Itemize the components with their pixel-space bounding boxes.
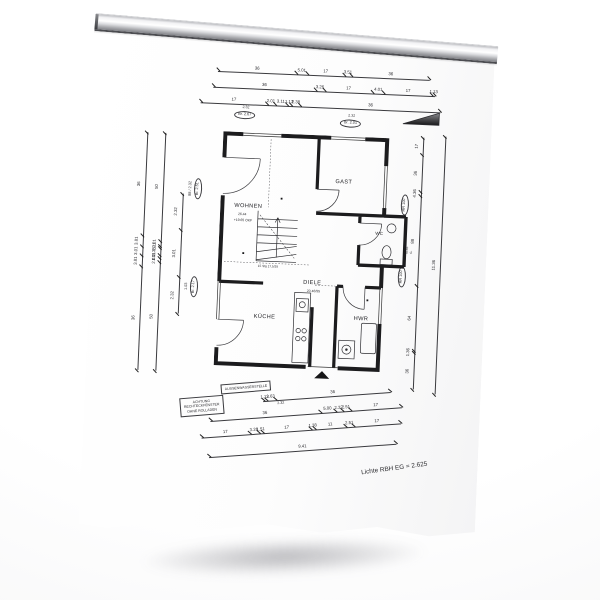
- dim-segment: 17: [263, 424, 312, 435]
- stove-icon: [296, 328, 307, 341]
- room-label-gast: GAST: [335, 180, 352, 186]
- dim-value: 36: [131, 315, 135, 320]
- dimension-chain-top-2: 363.26174.01171.13: [213, 81, 435, 98]
- wc-annotation: Kl.AF G.: [406, 244, 414, 254]
- dim-value: 17: [373, 403, 378, 408]
- dim-segment: 36: [137, 132, 149, 236]
- dim-segment: 36: [131, 266, 143, 370]
- dim-segment: 9.41: [209, 438, 397, 459]
- room-label-diele: DIELE: [303, 281, 321, 287]
- dim-value: 36: [136, 181, 140, 186]
- dim-value: 3.81: [134, 237, 139, 246]
- diele-note: 20 46/55: [307, 289, 320, 294]
- window-tag-group: 1.03 Br. 2.17: [185, 276, 199, 298]
- dim-value: 3.81: [133, 256, 138, 265]
- dim-value: 3.01: [134, 246, 139, 255]
- room-label-wc: WC: [375, 232, 383, 237]
- dim-value: 50: [154, 184, 158, 189]
- room-label-hwr: HWR: [354, 317, 369, 323]
- drawing-caption: Lichte RBH EG = 2.625: [361, 461, 428, 477]
- entrance-marker: [314, 371, 329, 379]
- room-level-label: +19.65 OKF: [234, 218, 253, 223]
- dim-value: 17: [406, 89, 411, 93]
- utility-fixtures: [338, 322, 376, 360]
- kitchen-fixtures: [292, 292, 311, 363]
- paper-drop-shadow: [103, 533, 504, 593]
- stair-note: 15 Stg 17,5/29: [258, 265, 278, 270]
- dim-value: 36: [330, 390, 335, 395]
- toilet-icon: [382, 246, 392, 259]
- dimension-chain-right-total: 11.36: [429, 136, 448, 394]
- dim-segment: 11.36: [429, 136, 448, 394]
- dimension-tag-oval: Br. 2.01: [340, 119, 361, 128]
- window-size-label: 2.32: [348, 113, 355, 118]
- dim-value: 11: [328, 423, 333, 428]
- dim-segment: 17: [307, 69, 344, 79]
- dim-value: 17: [223, 430, 228, 435]
- dim-segment: 17: [201, 428, 250, 439]
- dim-segment: 36: [218, 65, 297, 76]
- dimension-chain-top-1: 365.01173.5136: [218, 65, 430, 82]
- dim-value: 36: [388, 73, 393, 77]
- product-photo: 365.01173.5136 363.26174.01171.13 172.01…: [0, 0, 600, 600]
- dim-value: 17: [346, 87, 351, 91]
- exterior-walls: [214, 131, 390, 370]
- appliance-icon: [360, 323, 376, 354]
- dim-value: 17: [374, 419, 379, 424]
- dim-segment: 17: [324, 85, 372, 95]
- dim-segment: 17: [350, 401, 402, 413]
- room-label-wohnen: WOHNEN: [234, 204, 262, 211]
- dim-segment: 36: [213, 81, 315, 93]
- wc-fixtures: [380, 223, 396, 265]
- dim-value: 11.36: [431, 260, 436, 271]
- dim-segment: 2.32: [172, 277, 182, 314]
- dim-value: 36: [262, 411, 267, 416]
- dim-value: 2.32: [173, 207, 178, 216]
- interior-walls: [216, 133, 387, 370]
- sink-icon: [387, 224, 396, 233]
- dim-value: 17: [231, 98, 236, 102]
- room-label-kueche: KÜCHE: [254, 315, 276, 321]
- dim-value: 17: [284, 426, 289, 431]
- dim-segment: 50: [155, 133, 168, 242]
- dim-segment: 3.01: [173, 230, 183, 278]
- dim-segment: 36: [352, 71, 431, 82]
- dimension-tag-oval: Br. 2.17: [189, 276, 198, 297]
- window-size-label: 88 / 2.32: [189, 181, 193, 196]
- dimension-chain-left-inner: 502.011.113.381.112.0150: [149, 133, 167, 371]
- dim-segment: 17: [201, 96, 267, 107]
- dim-value: 17: [323, 70, 328, 74]
- floor-plan-sheet: 365.01173.5136 363.26174.01171.13 172.01…: [78, 20, 495, 550]
- dim-value: 2.32: [170, 291, 175, 300]
- staircase: [256, 211, 298, 263]
- dimension-tag-oval: Br. 2.51: [193, 178, 202, 199]
- dim-value: 3.11: [277, 100, 285, 105]
- rail-end-cap: [94, 14, 98, 29]
- dim-segment: 36: [210, 407, 320, 423]
- dim-segment: 17: [353, 417, 402, 428]
- window-size-label: 2.32: [242, 105, 249, 110]
- window-tag-group: 88 / 2.32 Br. 2.51: [189, 178, 203, 200]
- floor-plan-geometry: [213, 131, 419, 385]
- dimension-chain-left-outer: 363.813.013.8136: [131, 132, 149, 370]
- sink-icon: [296, 298, 309, 311]
- dimension-tag-oval: Br. 2.67: [234, 111, 255, 120]
- dim-segment: 11: [314, 421, 346, 431]
- dim-segment: 50: [149, 262, 162, 371]
- kitchen-counter: [292, 292, 311, 363]
- window-symbols: [215, 132, 389, 369]
- dimension-chain-bottom-total: 9.41: [209, 438, 397, 459]
- dim-segment: 17: [384, 88, 432, 98]
- dim-segment: 36: [275, 386, 391, 402]
- slope-wedge-icon: [402, 109, 443, 129]
- dimension-chain-left-short: 2.323.012.32: [172, 193, 185, 313]
- floor-plan-drawing: WOHNEN 26.44 +19.65 OKF GAST DIELE 20 46…: [213, 131, 419, 385]
- window-size-label: 2.32: [277, 401, 284, 406]
- note-box-warning: ACHTUNG RECHTECKFENSTER OHNE ROLLADEN: [179, 395, 224, 418]
- dim-value: 36: [255, 67, 260, 71]
- window-size-label: 1.03: [185, 283, 189, 291]
- dim-value: 50: [149, 314, 153, 319]
- dim-value: 9.41: [298, 445, 307, 450]
- dim-segment: 2.32: [175, 193, 185, 230]
- room-area-label: 26.44: [238, 212, 247, 216]
- dim-value: 3.01: [171, 249, 176, 258]
- dim-value: 5.00: [323, 407, 332, 412]
- dim-value: 36: [368, 104, 373, 108]
- dim-value: 36: [262, 83, 267, 87]
